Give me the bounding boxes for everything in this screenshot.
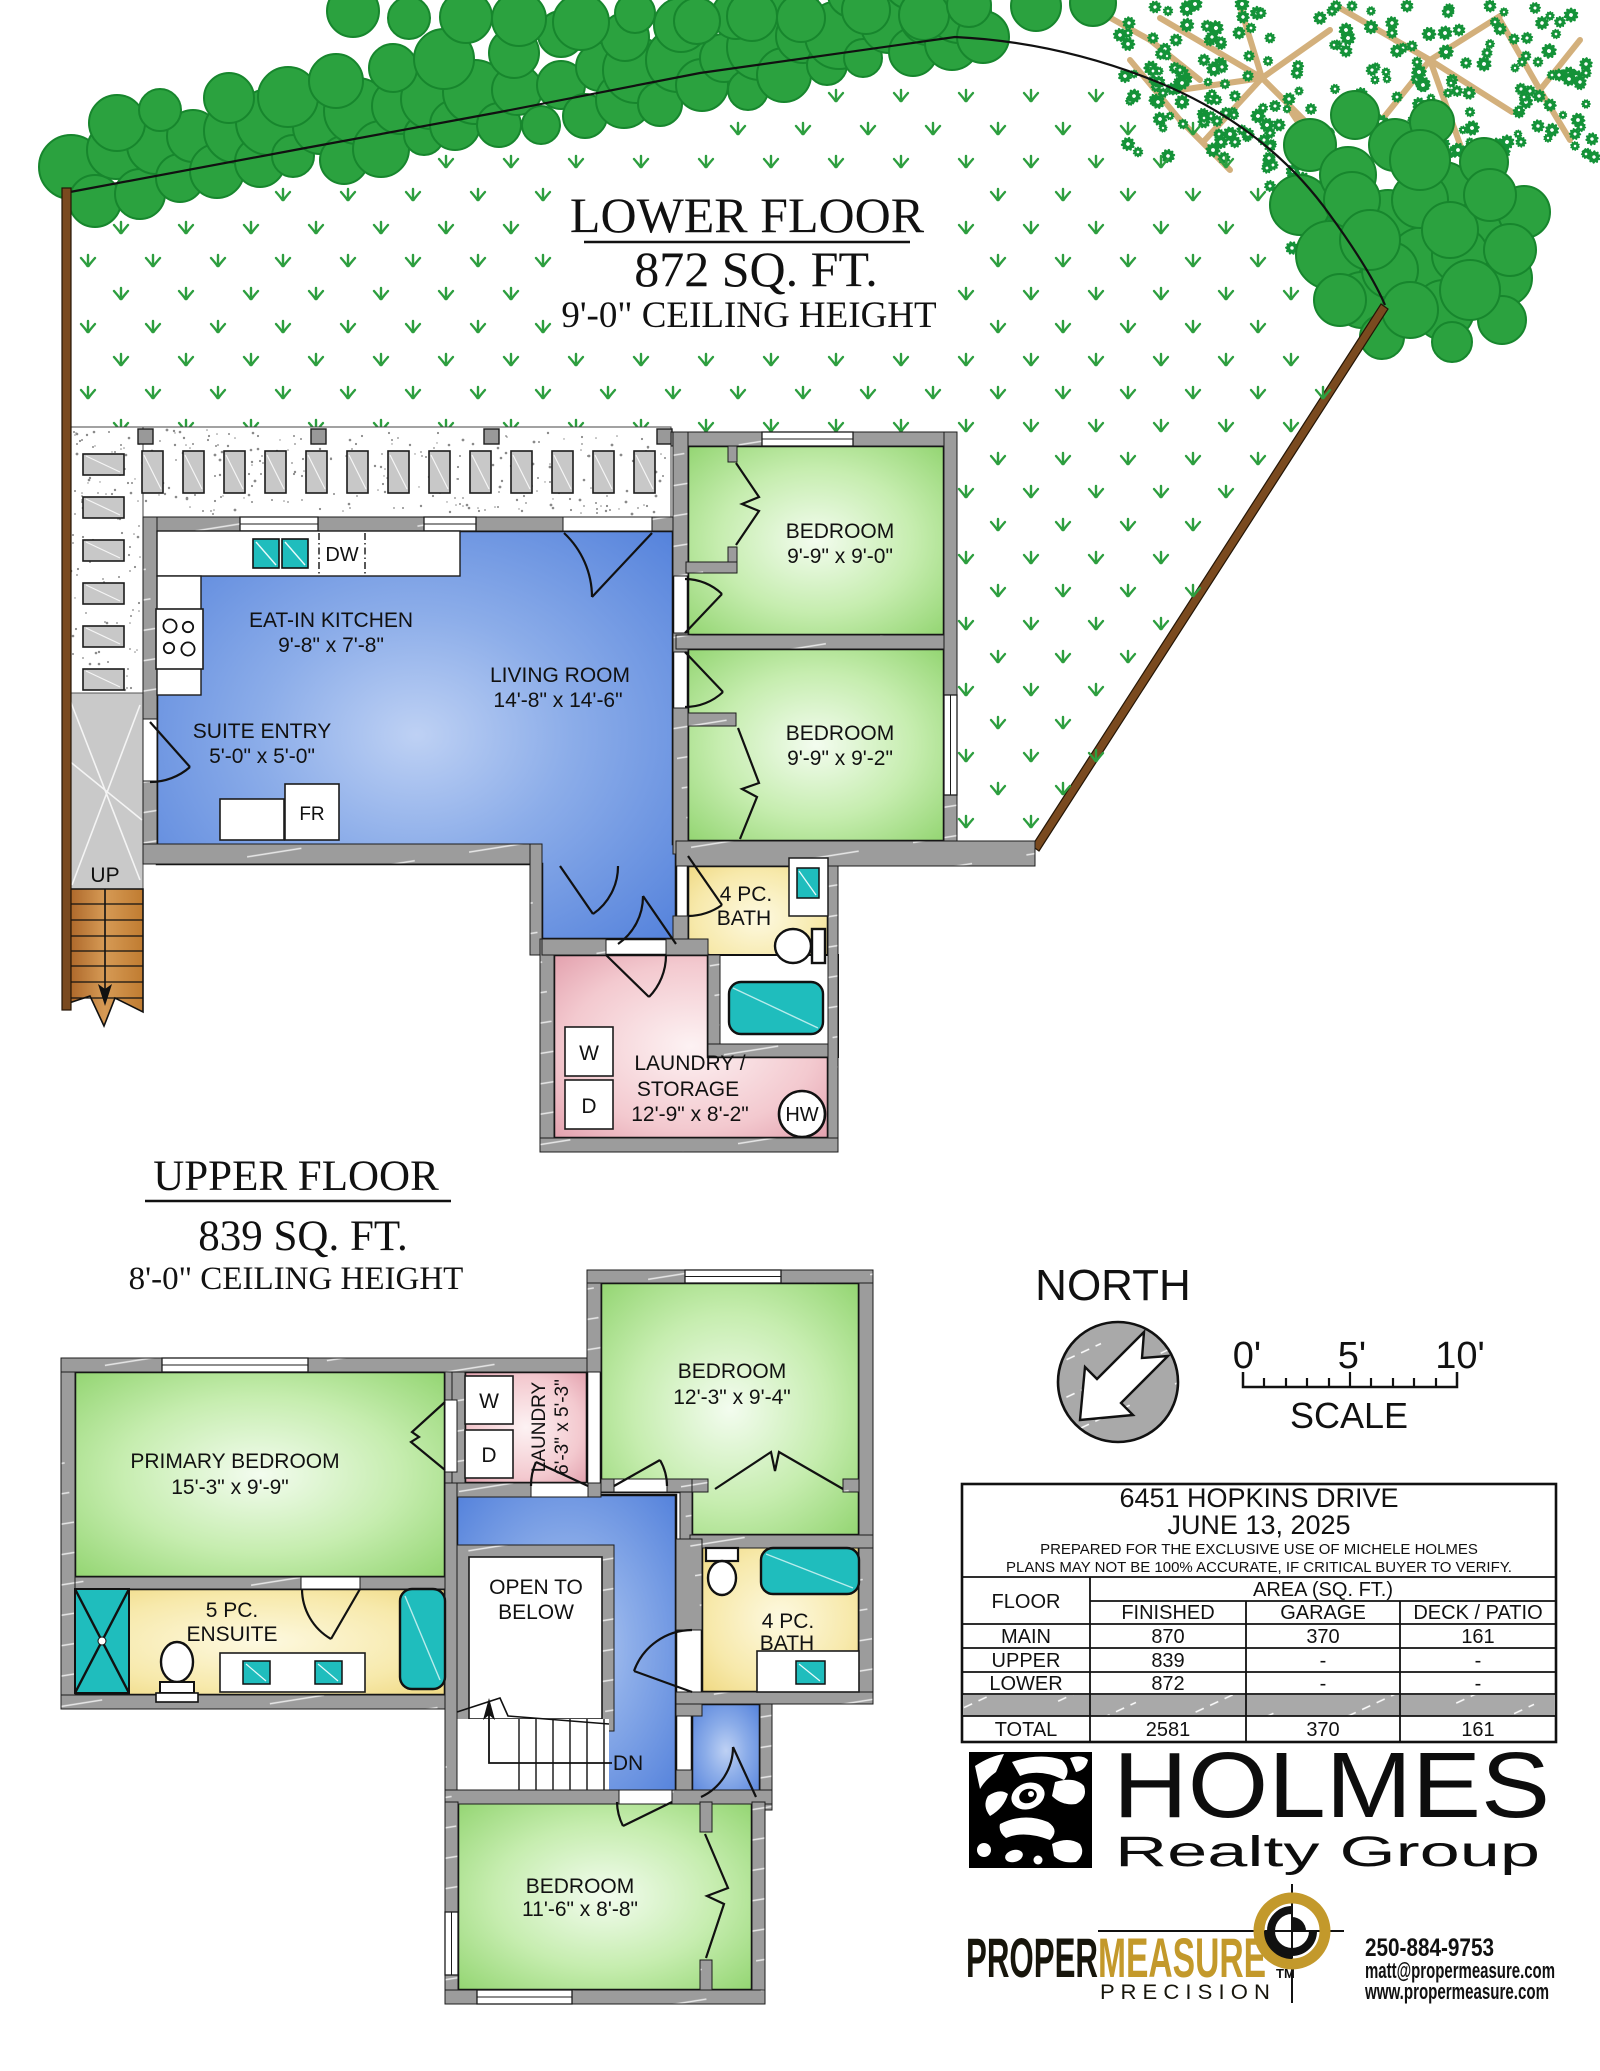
svg-text:BEDROOM: BEDROOM — [786, 722, 895, 745]
svg-text:872: 872 — [1151, 1673, 1184, 1695]
svg-text:DN: DN — [613, 1752, 643, 1775]
svg-text:12'-9" x 8'-2": 12'-9" x 8'-2" — [631, 1103, 748, 1126]
svg-text:PROPER: PROPER — [966, 1926, 1098, 1989]
svg-text:4 PC.: 4 PC. — [762, 1610, 815, 1633]
svg-text:STORAGE: STORAGE — [637, 1078, 739, 1101]
svg-text:PREPARED FOR THE EXCLUSIVE USE: PREPARED FOR THE EXCLUSIVE USE OF MICHEL… — [1040, 1541, 1478, 1558]
svg-text:www.propermeasure.com: www.propermeasure.com — [1364, 1979, 1549, 2004]
svg-text:LAUNDRY /: LAUNDRY / — [634, 1052, 745, 1075]
svg-text:PRIMARY BEDROOM: PRIMARY BEDROOM — [130, 1450, 339, 1473]
svg-text:11'-6" x 8'-8": 11'-6" x 8'-8" — [522, 1898, 638, 1921]
svg-text:SUITE ENTRY: SUITE ENTRY — [193, 720, 331, 743]
svg-text:10': 10' — [1435, 1335, 1485, 1377]
svg-text:TOTAL: TOTAL — [995, 1719, 1058, 1741]
svg-text:PLANS MAY NOT BE 100% ACCURATE: PLANS MAY NOT BE 100% ACCURATE, IF CRITI… — [1006, 1559, 1512, 1576]
svg-text:9'-9" x 9'-2": 9'-9" x 9'-2" — [787, 747, 893, 770]
svg-text:161: 161 — [1461, 1626, 1494, 1648]
svg-text:UP: UP — [90, 864, 119, 887]
svg-text:BEDROOM: BEDROOM — [526, 1875, 635, 1898]
svg-text:D: D — [481, 1444, 496, 1467]
svg-text:LOWER: LOWER — [989, 1673, 1062, 1695]
svg-text:AREA (SQ. FT.): AREA (SQ. FT.) — [1253, 1579, 1393, 1601]
svg-text:LAUNDRY: LAUNDRY — [529, 1381, 550, 1472]
svg-text:MAIN: MAIN — [1001, 1626, 1051, 1648]
svg-text:GARAGE: GARAGE — [1280, 1602, 1366, 1624]
svg-text:HOLMES: HOLMES — [1113, 1733, 1550, 1837]
svg-text:MEASURE: MEASURE — [1098, 1926, 1266, 1989]
svg-text:5': 5' — [1338, 1335, 1366, 1377]
svg-text:EAT-IN KITCHEN: EAT-IN KITCHEN — [249, 609, 413, 632]
svg-text:-: - — [1320, 1673, 1327, 1695]
svg-text:DECK / PATIO: DECK / PATIO — [1413, 1602, 1542, 1624]
svg-text:-: - — [1475, 1650, 1482, 1672]
svg-text:DW: DW — [325, 544, 358, 566]
svg-text:8'-0" CEILING HEIGHT: 8'-0" CEILING HEIGHT — [129, 1261, 464, 1297]
svg-text:-: - — [1320, 1650, 1327, 1672]
svg-text:4 PC.: 4 PC. — [720, 883, 773, 906]
svg-text:ENSUITE: ENSUITE — [186, 1623, 277, 1646]
svg-text:370: 370 — [1306, 1626, 1339, 1648]
svg-text:839: 839 — [1151, 1650, 1184, 1672]
svg-text:OPEN TO: OPEN TO — [489, 1576, 583, 1599]
svg-text:6451 HOPKINS DRIVE: 6451 HOPKINS DRIVE — [1119, 1483, 1398, 1513]
svg-text:LIVING ROOM: LIVING ROOM — [490, 664, 630, 687]
svg-text:BEDROOM: BEDROOM — [786, 520, 895, 543]
svg-text:Realty Group: Realty Group — [1115, 1828, 1540, 1876]
svg-text:FLOOR: FLOOR — [992, 1591, 1061, 1613]
svg-text:839 SQ. FT.: 839 SQ. FT. — [198, 1213, 407, 1260]
svg-text:0': 0' — [1233, 1335, 1261, 1377]
svg-text:9'-8" x 7'-8": 9'-8" x 7'-8" — [278, 634, 384, 657]
svg-text:12'-3" x 9'-4": 12'-3" x 9'-4" — [673, 1386, 790, 1409]
svg-text:HW: HW — [785, 1104, 818, 1126]
svg-text:BEDROOM: BEDROOM — [678, 1360, 787, 1383]
svg-text:BATH: BATH — [760, 1632, 814, 1655]
svg-text:5'-0" x 5'-0": 5'-0" x 5'-0" — [209, 745, 315, 768]
svg-text:9'-9" x 9'-0": 9'-9" x 9'-0" — [787, 545, 893, 568]
svg-text:6'-3" x 5'-3": 6'-3" x 5'-3" — [552, 1379, 573, 1475]
svg-text:JUNE 13, 2025: JUNE 13, 2025 — [1167, 1510, 1350, 1540]
svg-text:5 PC.: 5 PC. — [206, 1599, 259, 1622]
svg-text:BELOW: BELOW — [498, 1601, 574, 1624]
svg-text:W: W — [479, 1390, 499, 1413]
svg-text:UPPER FLOOR: UPPER FLOOR — [153, 1153, 439, 1200]
svg-text:P R E C I S I O N: P R E C I S I O N — [1100, 1981, 1270, 2004]
svg-text:LOWER FLOOR: LOWER FLOOR — [570, 187, 925, 243]
svg-text:W: W — [579, 1042, 599, 1065]
svg-text:870: 870 — [1151, 1626, 1184, 1648]
svg-text:-: - — [1475, 1673, 1482, 1695]
svg-text:D: D — [581, 1095, 596, 1118]
svg-text:9'-0" CEILING HEIGHT: 9'-0" CEILING HEIGHT — [561, 295, 936, 336]
svg-text:UPPER: UPPER — [992, 1650, 1061, 1672]
svg-text:FINISHED: FINISHED — [1121, 1602, 1214, 1624]
svg-text:BATH: BATH — [717, 907, 771, 930]
svg-text:14'-8" x 14'-6": 14'-8" x 14'-6" — [493, 689, 622, 712]
svg-text:15'-3" x 9'-9": 15'-3" x 9'-9" — [171, 1476, 288, 1499]
svg-text:FR: FR — [299, 804, 324, 825]
svg-text:NORTH: NORTH — [1035, 1261, 1191, 1310]
svg-text:872 SQ. FT.: 872 SQ. FT. — [634, 241, 878, 297]
svg-text:SCALE: SCALE — [1290, 1395, 1408, 1436]
